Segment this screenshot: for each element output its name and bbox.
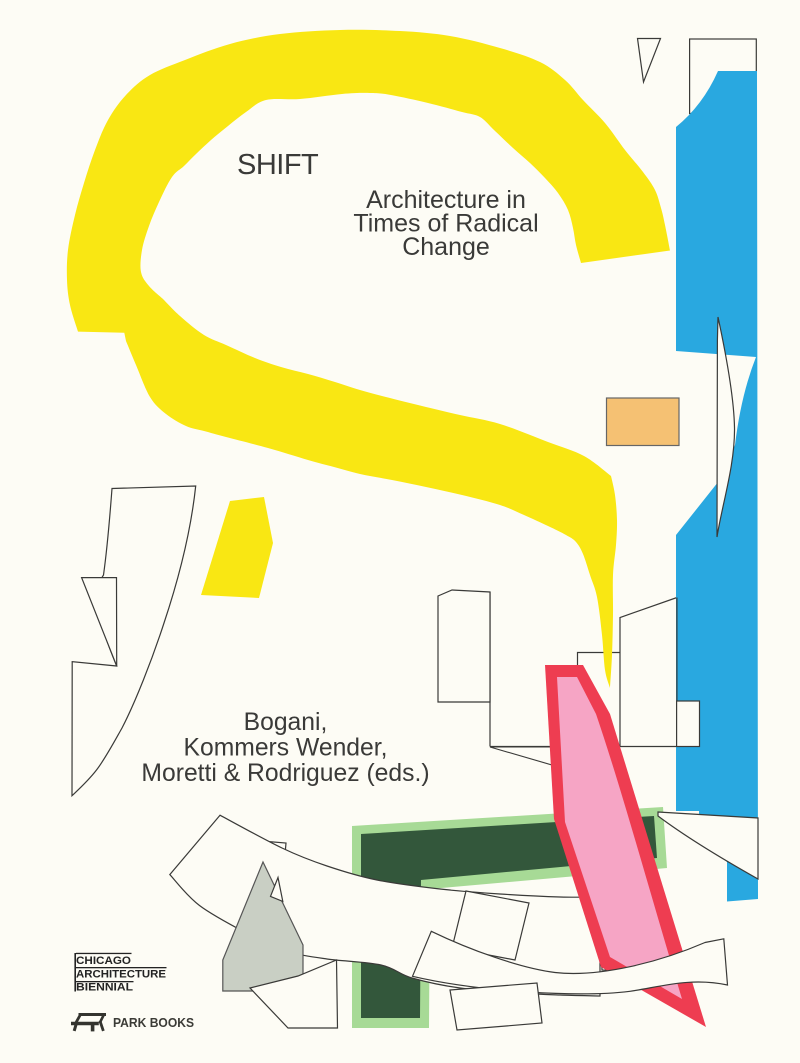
svg-text:PARK BOOKS: PARK BOOKS	[113, 1015, 194, 1030]
svg-text:CHICAGO: CHICAGO	[76, 955, 131, 967]
svg-text:Kommers Wender,: Kommers Wender,	[184, 735, 388, 762]
svg-text:Change: Change	[402, 233, 490, 261]
svg-text:Bogani,: Bogani,	[244, 709, 328, 736]
svg-text:BIENNIAL: BIENNIAL	[76, 981, 133, 993]
svg-text:SHIFT: SHIFT	[237, 149, 319, 181]
svg-text:ARCHITECTURE: ARCHITECTURE	[76, 968, 166, 980]
svg-text:Moretti & Rodriguez (eds.): Moretti & Rodriguez (eds.)	[141, 760, 429, 787]
